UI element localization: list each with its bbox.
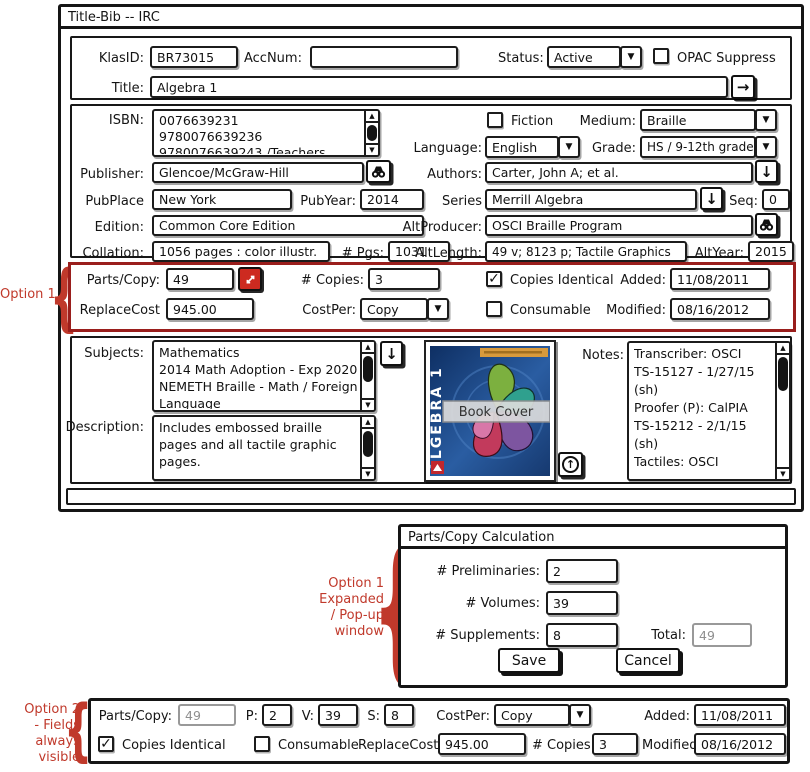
altproducer-lookup-button[interactable]: [755, 213, 778, 236]
chevron-down-icon: ▼: [763, 142, 770, 152]
binoculars-icon: [370, 163, 387, 180]
scrollbar-thumb[interactable]: [778, 357, 788, 391]
subjects-line: Language: [159, 395, 357, 409]
copies-field[interactable]: 3: [368, 268, 440, 290]
isbn-line: 9780076639236: [159, 129, 361, 145]
notes-line: Tactiles: OSCI: [634, 453, 772, 471]
collation-field[interactable]: 1056 pages : color illustr.: [152, 241, 330, 262]
notes-line: TS-15212 - 2/1/15: [634, 417, 772, 435]
added-field[interactable]: 11/08/2011: [670, 268, 770, 290]
pubplace-label: PubPlace: [72, 194, 144, 209]
scroll-up-icon[interactable]: ▲: [362, 342, 374, 354]
scroll-up-icon[interactable]: ▲: [362, 417, 374, 429]
fiction-label: Fiction: [511, 114, 553, 129]
altyear-field[interactable]: 2015: [748, 241, 794, 262]
isbn-textarea[interactable]: 0076639231 9780076639236 9780076639243 /…: [152, 109, 380, 157]
notes-line: TS-15127 - 1/27/15: [634, 363, 772, 381]
subjects-label: Subjects:: [76, 346, 144, 361]
volumes-field[interactable]: 39: [546, 591, 618, 615]
klasid-label: KlasID:: [88, 51, 144, 66]
scrollbar-thumb[interactable]: [363, 356, 373, 382]
s-label: S:: [366, 709, 380, 724]
window-title: Title-Bib -- IRC: [68, 10, 160, 25]
seq-label: Seq:: [726, 194, 758, 209]
popup-titlebar: Parts/Copy Calculation: [401, 527, 785, 549]
book-cover-spine-title: ALGEBRA 1: [430, 366, 445, 472]
series-label: Series: [434, 194, 482, 209]
consumable-checkbox[interactable]: [254, 736, 270, 752]
copies-identical-checkbox[interactable]: ✓: [486, 271, 502, 287]
edition-field[interactable]: Common Core Edition: [152, 215, 424, 236]
notes-line: Transcriber: OSCI: [634, 345, 772, 363]
subjects-textarea[interactable]: Mathematics 2014 Math Adoption - Exp 202…: [152, 340, 376, 412]
copies-label: # Copies:: [298, 273, 364, 288]
grade-label: Grade:: [590, 141, 636, 156]
arrow-right-icon: →: [737, 78, 750, 96]
added-label: Added:: [638, 709, 690, 724]
edition-label: Edition:: [72, 220, 144, 235]
option1-annotation: Option 1: [0, 287, 50, 303]
total-label: Total:: [642, 628, 686, 643]
scroll-up-icon[interactable]: ▲: [777, 343, 789, 355]
parts-copy-field-readonly: 49: [178, 704, 236, 726]
chevron-down-icon: ▼: [566, 142, 573, 152]
scroll-down-icon[interactable]: ▼: [362, 467, 374, 479]
arrow-down-icon: ↓: [385, 345, 398, 363]
pubplace-field[interactable]: New York: [152, 189, 292, 210]
altlength-field[interactable]: 49 v; 8123 p; Tactile Graphics: [485, 241, 687, 262]
modified-label: Modified:: [642, 738, 690, 753]
isbn-label: ISBN:: [88, 113, 144, 128]
accnum-label: AccNum:: [244, 51, 302, 66]
preliminaries-field[interactable]: 2: [546, 559, 618, 583]
copies-identical-label: Copies Identical: [510, 273, 614, 288]
volumes-label: # Volumes:: [418, 596, 540, 611]
cancel-button[interactable]: Cancel: [616, 648, 680, 673]
notes-line: Proofer (P): CalPIA: [634, 399, 772, 417]
replacecost-field[interactable]: 945.00: [438, 733, 526, 755]
publisher-field[interactable]: Glencoe/McGraw-Hill: [152, 162, 364, 183]
added-field[interactable]: 11/08/2011: [694, 704, 786, 726]
binoculars-icon: [758, 216, 775, 233]
modified-label: Modified:: [604, 303, 666, 318]
notes-scrollbar[interactable]: ▲ ▼: [775, 343, 789, 479]
copies-identical-label: Copies Identical: [122, 738, 226, 753]
isbn-scrollbar[interactable]: ▲ ▼: [364, 111, 378, 155]
mockup-canvas: Title-Bib -- IRC KlasID: BR73015 AccNum:…: [0, 0, 810, 772]
consumable-label: Consumable: [278, 738, 359, 753]
subjects-scrollbar[interactable]: ▲ ▼: [360, 342, 374, 410]
consumable-label: Consumable: [510, 303, 591, 318]
parts-copy-label: Parts/Copy:: [96, 709, 172, 724]
title-field[interactable]: Algebra 1: [150, 76, 728, 98]
total-field: 49: [692, 623, 752, 647]
series-field[interactable]: Merrill Algebra: [485, 189, 697, 210]
medium-label: Medium:: [578, 114, 636, 129]
fiction-checkbox[interactable]: [487, 112, 503, 128]
consumable-checkbox[interactable]: [486, 301, 502, 317]
v-label: V:: [300, 709, 314, 724]
subjects-line: 2014 Math Adoption - Exp 2020: [159, 361, 357, 378]
costper-select[interactable]: Copy: [494, 704, 570, 726]
arrow-down-icon: ↓: [705, 190, 718, 208]
description-label: Description:: [62, 420, 144, 435]
notes-line: (sh): [634, 381, 772, 399]
isbn-line: 0076639231: [159, 113, 361, 129]
publisher-lookup-button[interactable]: [366, 160, 391, 183]
supplements-field[interactable]: 8: [546, 623, 618, 647]
medium-select[interactable]: Braille: [640, 109, 756, 131]
altproducer-label: AltProducer:: [400, 220, 482, 235]
publisher-label: Publisher:: [72, 167, 144, 182]
opac-suppress-label: OPAC Suppress: [677, 51, 776, 66]
s-field[interactable]: 8: [384, 704, 414, 726]
isbn-line: 9780076639243 /Teachers: [159, 145, 361, 154]
book-cover: Book Cover ALGEBRA 1: [424, 340, 556, 482]
modified-field[interactable]: 08/16/2012: [694, 733, 786, 755]
p-field[interactable]: 2: [262, 704, 292, 726]
notes-label: Notes:: [580, 348, 624, 363]
scroll-down-icon[interactable]: ▼: [366, 143, 378, 155]
costper-select[interactable]: Copy: [360, 298, 428, 320]
cover-upload-button[interactable]: ↑: [558, 452, 583, 477]
popup-title: Parts/Copy Calculation: [408, 530, 554, 545]
parts-copy-field[interactable]: 49: [166, 268, 234, 290]
copies-field[interactable]: 3: [592, 733, 638, 755]
arrow-down-icon: ↓: [760, 163, 773, 181]
description-textarea[interactable]: Includes embossed braille pages and all …: [152, 415, 376, 481]
window-titlebar: Title-Bib -- IRC: [61, 7, 801, 29]
chevron-down-icon: ▼: [763, 115, 770, 125]
scroll-down-icon[interactable]: ▼: [362, 398, 374, 410]
scroll-up-icon[interactable]: ▲: [366, 111, 378, 123]
grade-select[interactable]: HS / 9-12th grade: [640, 136, 756, 158]
altlength-label: AltLength:: [410, 246, 482, 261]
notes-textarea[interactable]: Transcriber: OSCI TS-15127 - 1/27/15 (sh…: [627, 341, 791, 481]
window-footer-strip: [66, 488, 796, 505]
language-select[interactable]: English: [485, 136, 559, 158]
popup-annotation: Option 1 Expanded / Pop-up window: [296, 576, 384, 640]
copies-label: # Copies:: [532, 738, 588, 753]
grade-dropdown-button[interactable]: ▼: [755, 136, 777, 158]
description-scrollbar[interactable]: ▲ ▼: [360, 417, 374, 479]
altproducer-field[interactable]: OSCI Braille Program: [485, 215, 753, 236]
status-label: Status:: [498, 51, 544, 66]
authors-field[interactable]: Carter, John A; et al.: [485, 162, 753, 183]
costper-label: CostPer:: [432, 709, 490, 724]
book-cover-caption: Book Cover: [459, 405, 534, 420]
language-dropdown-button[interactable]: ▼: [558, 136, 580, 158]
accnum-field[interactable]: [310, 46, 458, 68]
modified-field[interactable]: 08/16/2012: [670, 298, 770, 320]
save-button[interactable]: Save: [498, 648, 560, 673]
chevron-down-icon: ▼: [435, 304, 442, 314]
chevron-down-icon: ▼: [577, 710, 584, 720]
status-dropdown-button[interactable]: ▼: [620, 46, 642, 68]
altyear-label: AltYear:: [692, 246, 744, 261]
costper-dropdown-button[interactable]: ▼: [427, 298, 449, 320]
notes-line: (sh): [634, 435, 772, 453]
authors-label: Authors:: [418, 167, 482, 182]
pubyear-field[interactable]: 2014: [360, 189, 424, 210]
v-field[interactable]: 39: [318, 704, 358, 726]
p-label: P:: [244, 709, 258, 724]
title-label: Title:: [88, 81, 144, 96]
costper-dropdown-button[interactable]: ▼: [569, 704, 591, 726]
opac-suppress-checkbox[interactable]: [653, 48, 669, 64]
scrollbar-thumb[interactable]: [363, 431, 373, 457]
medium-dropdown-button[interactable]: ▼: [755, 109, 777, 131]
series-expand-button[interactable]: ↓: [700, 187, 723, 210]
description-text: Includes embossed braille pages and all …: [159, 419, 357, 478]
replacecost-label: ReplaceCost: [76, 303, 160, 318]
parts-copy-expand-button[interactable]: [238, 267, 262, 291]
seq-field[interactable]: 0: [762, 189, 790, 210]
scrollbar-thumb[interactable]: [367, 125, 377, 141]
chevron-down-icon: ▼: [628, 52, 635, 62]
title-next-button[interactable]: →: [731, 75, 755, 99]
parts-copy-label: Parts/Copy:: [76, 273, 160, 288]
klasid-field[interactable]: BR73015: [150, 46, 238, 68]
subjects-line: NEMETH Braille - Math / Foreign: [159, 378, 357, 395]
subjects-line: Mathematics: [159, 344, 357, 361]
copies-identical-checkbox[interactable]: ✓: [98, 736, 114, 752]
costper-label: CostPer:: [302, 303, 356, 318]
pubyear-label: PubYear:: [296, 194, 356, 209]
replacecost-field[interactable]: 945.00: [166, 298, 254, 320]
supplements-label: # Supplements:: [418, 628, 540, 643]
expand-diagonal-icon: [243, 272, 258, 287]
language-label: Language:: [410, 141, 482, 156]
status-select[interactable]: Active: [547, 46, 621, 68]
pgs-label: # Pgs:: [336, 246, 384, 261]
upload-icon: ↑: [562, 456, 579, 473]
subjects-expand-button[interactable]: ↓: [380, 341, 403, 366]
added-label: Added:: [616, 273, 666, 288]
replacecost-label: ReplaceCost: [358, 738, 434, 753]
scroll-down-icon[interactable]: ▼: [777, 467, 789, 479]
authors-expand-button[interactable]: ↓: [755, 160, 778, 183]
preliminaries-label: # Preliminaries:: [418, 564, 540, 579]
book-cover-image: Book Cover ALGEBRA 1: [430, 346, 550, 476]
collation-label: Collation:: [72, 246, 144, 261]
